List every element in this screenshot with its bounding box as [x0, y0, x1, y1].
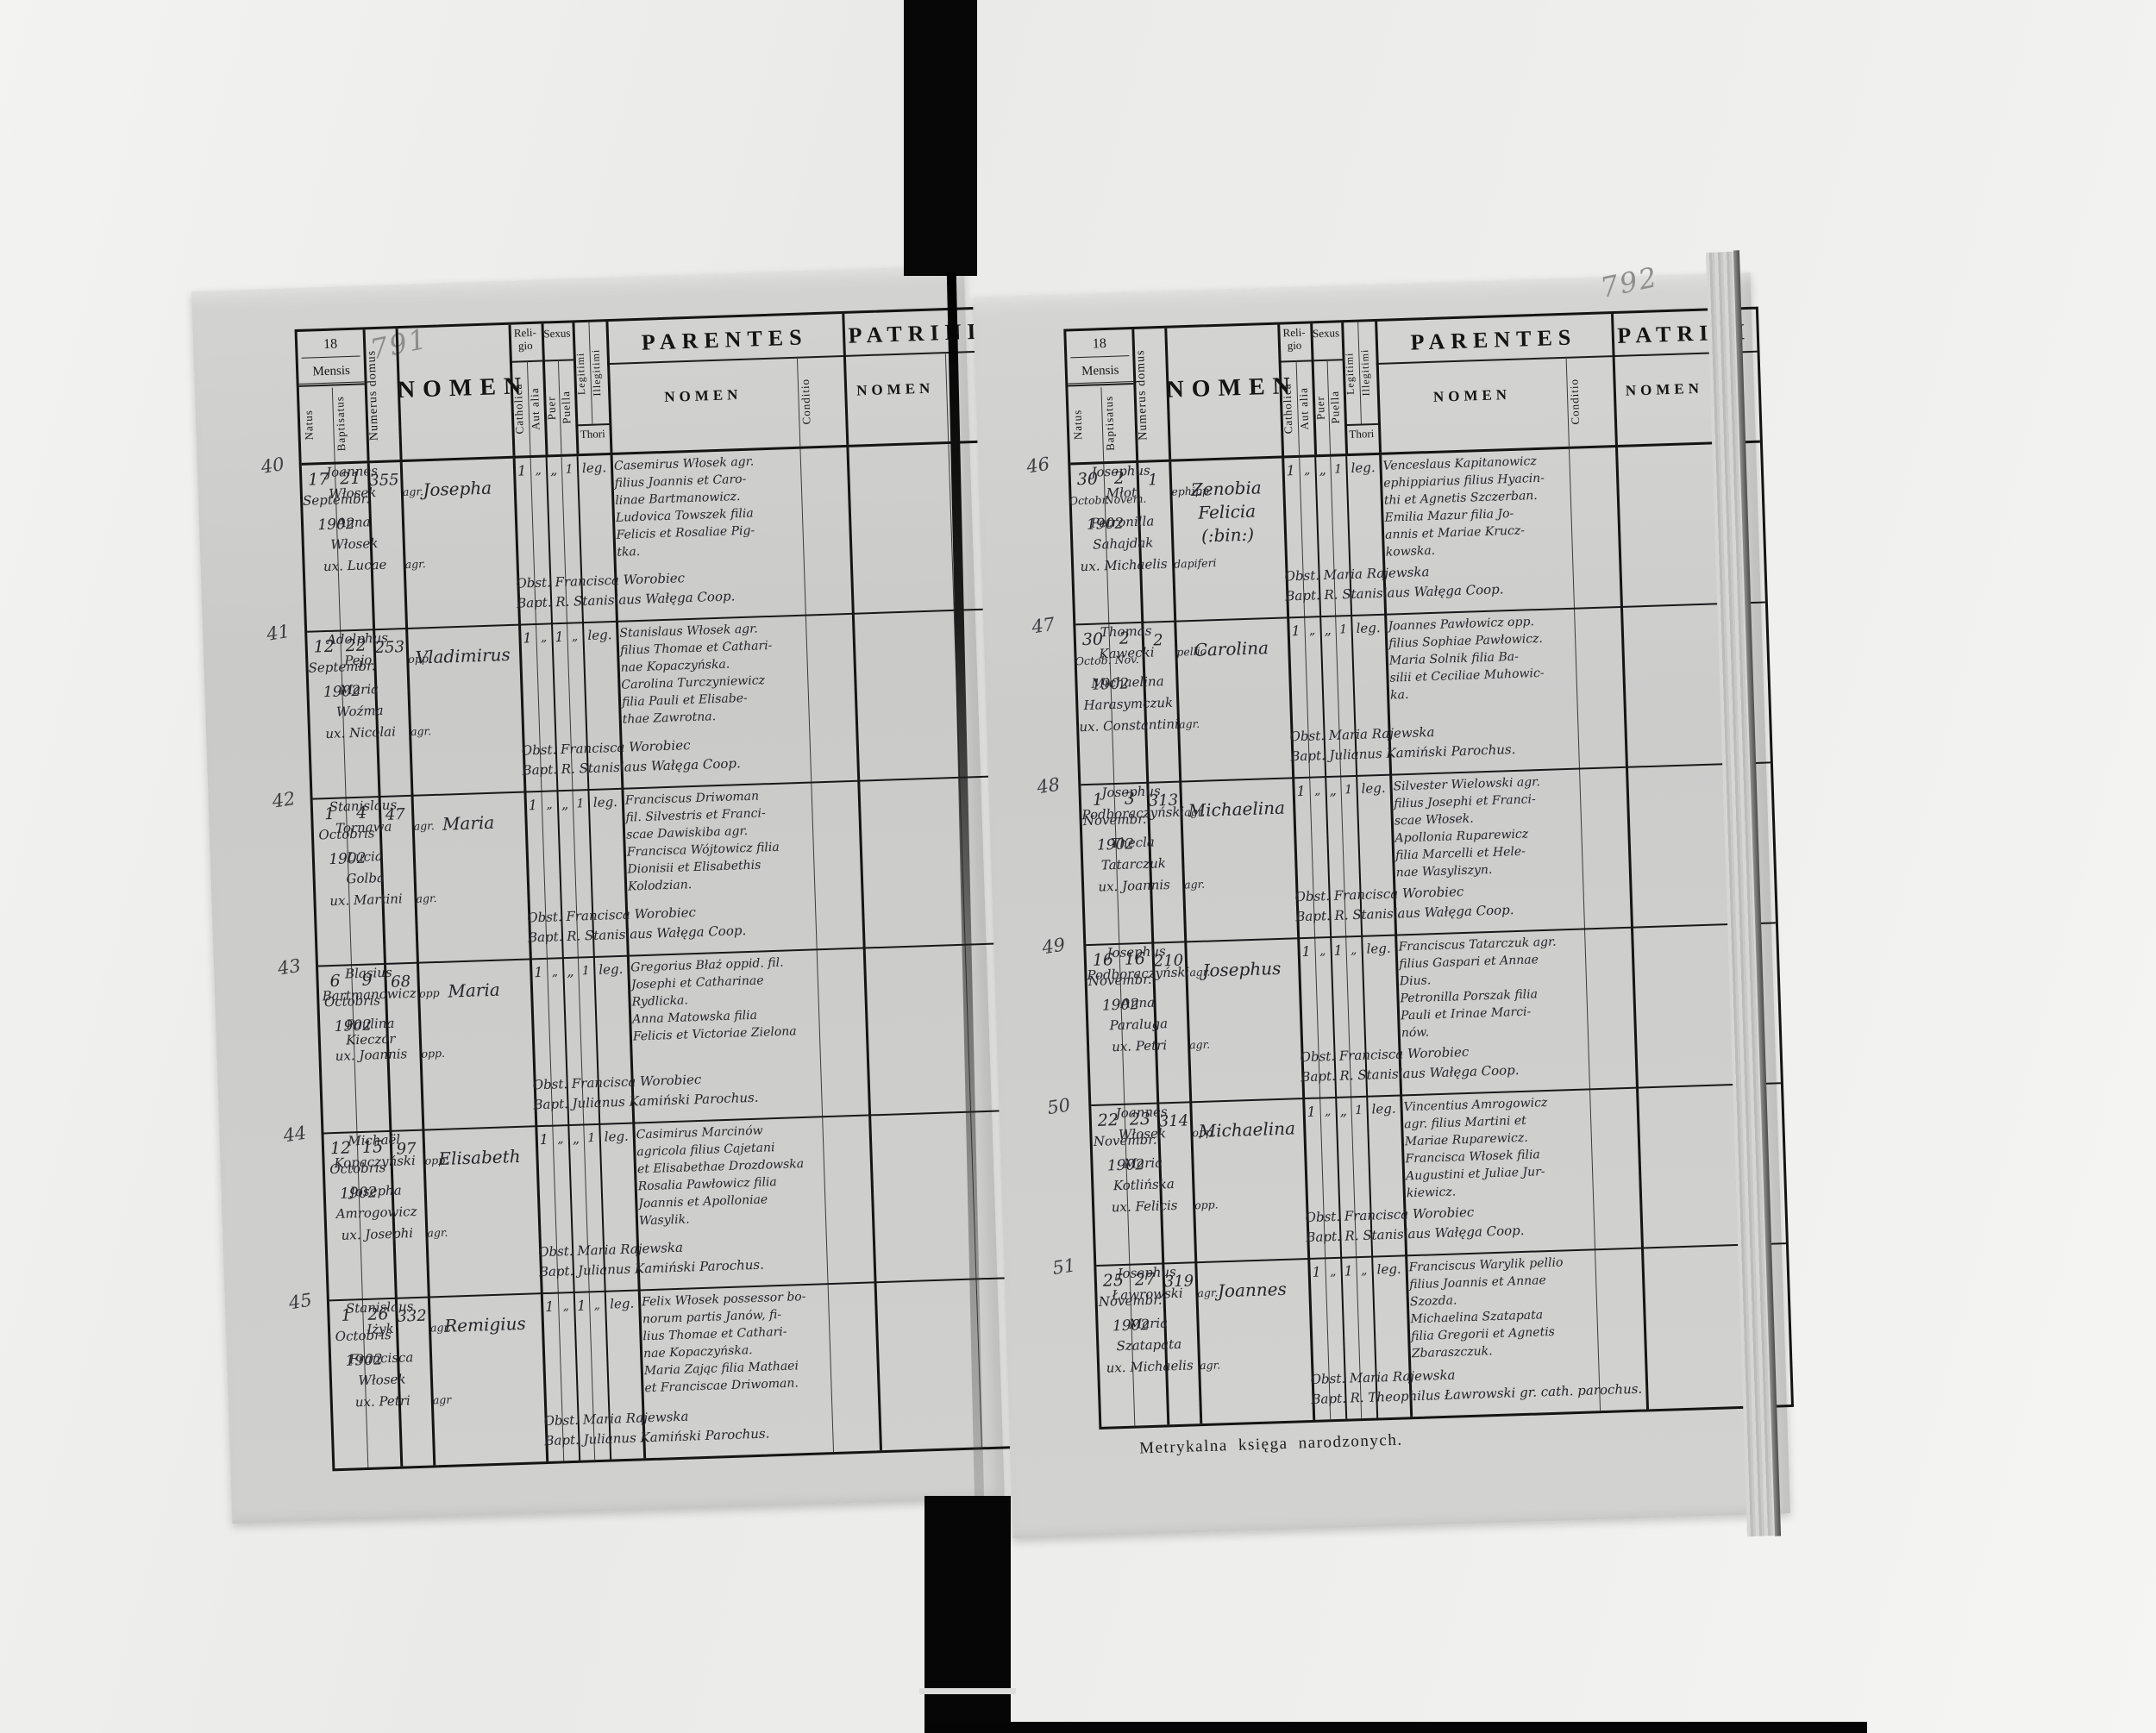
child-name: Maria: [417, 977, 531, 1004]
baptizer-line: Bapt. Julianus Kamiński Parochus.: [544, 1426, 770, 1449]
year: 1902: [304, 515, 370, 535]
natus-day: 30: [1071, 469, 1105, 489]
baptizer-line: Bapt. R. Stanislaus Wałęga Coop.: [517, 588, 736, 610]
mark-puella: 1: [561, 462, 578, 477]
patrini-conditio: [1197, 1274, 1238, 1276]
patrini-name: ux. Nicolai: [310, 723, 411, 742]
header-numerus-domus: Numerus domus: [1133, 332, 1167, 457]
child-name: Joannes: [1195, 1277, 1309, 1304]
baptizer-line: Bapt. Julianus Kamiński Parochus.: [1290, 741, 1516, 764]
patrini-conditio: agr.: [427, 1225, 468, 1240]
year: 1902: [1087, 996, 1154, 1015]
month: Octobris: [314, 825, 380, 843]
month: Octobris: [325, 1160, 392, 1178]
header-numerus-domus: Numerus domus: [365, 332, 398, 457]
mark-catholica: 1: [1302, 1103, 1320, 1120]
baptizer-line: Bapt. R. Stanislaus Wałęga Coop.: [1295, 902, 1514, 924]
entry-row: 30 2 Octobr. Novem. 1902 1 ZenobiaFelici…: [1070, 443, 1765, 626]
patrini-name: ux. Petri: [1089, 1036, 1190, 1055]
margin-entry-number: 50: [1046, 1094, 1072, 1118]
header-natus: Natus: [301, 388, 333, 461]
mark-puella: 1: [573, 797, 589, 811]
month-natus: Octobr.: [1069, 493, 1106, 507]
baptisatus-day: 23: [1123, 1110, 1158, 1129]
month: Novembr.: [1087, 972, 1153, 989]
patrini-conditio: [418, 974, 460, 976]
header-religio: Reli-gio: [509, 326, 542, 353]
year-prefix: 18: [301, 332, 360, 359]
mark-puella: 1: [578, 964, 594, 979]
patrini-conditio: agr.: [411, 723, 452, 738]
mark-catholica: 1: [1297, 943, 1315, 960]
parentes-text: Franciscus Warylik pelliofilius Joannis …: [1408, 1253, 1598, 1362]
child-name-line: Elisabeth: [423, 1144, 536, 1171]
mark-thori: leg.: [1346, 460, 1380, 476]
natus-day: 30: [1076, 629, 1110, 649]
patrini-conditio: [1192, 1114, 1233, 1116]
patrini-conditio: [408, 640, 449, 641]
mark-catholica: 1: [530, 964, 548, 981]
year: 1902: [1072, 515, 1138, 534]
baptisatus-day: 21: [333, 468, 368, 488]
month: Septembr.: [303, 491, 369, 509]
mark-puella: „: [1345, 943, 1362, 958]
mark-puella: 1: [1330, 462, 1346, 477]
baptizer-line: Bapt. Julianus Kamiński Parochus.: [533, 1090, 759, 1113]
mark-puer: „: [568, 1129, 585, 1147]
patrini-conditio: opp.: [1194, 1198, 1236, 1212]
mark-puer: „: [562, 963, 579, 980]
patrini-name: ux. Lucae: [304, 556, 405, 575]
mark-puella: 1: [1340, 783, 1357, 798]
patrini-name: Amrogowicz: [326, 1204, 427, 1223]
patrini-line: ux. Nicolaiagr.: [310, 722, 453, 748]
entry-row: 12 22 Septembr. 1902 253 Vladimirus 1 „ …: [307, 610, 1002, 799]
midwife-line: Obst. Maria Rajewska: [538, 1240, 683, 1261]
header-parentes-nomen: NOMEN: [608, 385, 799, 408]
parentes-text: Felix Włosek possessor bo-norum partis J…: [642, 1287, 831, 1397]
entry-row: 17 21 Septembr. 1902 355 Josepha 1 „ „ 1…: [302, 442, 997, 632]
pencil-page-number: 792: [1598, 260, 1661, 304]
month: Octobris: [330, 1327, 397, 1345]
mark-puer: „: [557, 796, 573, 813]
patrini-conditio: [402, 472, 443, 474]
mark-puer: „: [1314, 461, 1331, 479]
baptisatus-day: 2: [1107, 629, 1143, 648]
entry-row: 30 2 Octob. Nov. 1902 2 Carolina 1 „ „ 1…: [1075, 604, 1771, 786]
patrini-conditio: [420, 1025, 461, 1027]
mark-catholica: 1: [513, 462, 531, 479]
patrini-conditio: [413, 807, 454, 809]
register-table: 18 Mensis Natus Baptisatus Numerus domus…: [295, 306, 1027, 1471]
margin-entry-number: 48: [1036, 774, 1062, 798]
house-number: 97: [390, 1140, 423, 1159]
patrini-line: ux. Martiniagr.: [316, 889, 458, 915]
patrini-line: ux. Michaelisagr.: [1100, 1356, 1242, 1382]
patrini-conditio: [1199, 1325, 1240, 1327]
patrini-conditio: [1176, 633, 1218, 635]
mark-aut-alia: „: [553, 1132, 569, 1147]
child-name-line: Carolina: [1175, 635, 1288, 662]
register-page: 792 18 Mensis Natus Baptisatus Numerus d…: [973, 272, 1790, 1538]
film-edge-bar: [927, 1722, 1867, 1733]
mark-aut-alia: „: [558, 1299, 574, 1314]
patrini-name: ux. Martini: [316, 891, 417, 910]
mark-catholica: 1: [536, 1131, 554, 1148]
entry-row: 1 26 Octobris 1902 332 Remigius 1 „ 1 „ …: [329, 1279, 1025, 1468]
table-body: 17 21 Septembr. 1902 355 Josepha 1 „ „ 1…: [302, 442, 1025, 1468]
entry-row: 1 3 Novembr. 1902 313 Michaelina 1 „ „ 1…: [1081, 763, 1776, 946]
mark-puella: 1: [1335, 623, 1351, 637]
baptisatus-day: 2: [1102, 468, 1138, 488]
baptizer-line: Bapt. R. Stanislaus Wałęga Coop.: [1306, 1223, 1525, 1245]
patrini-line: ux. Felicisopp.: [1094, 1196, 1237, 1222]
header-parentes-conditio: Conditio: [1567, 359, 1614, 443]
table-header: 18 Mensis Natus Baptisatus Numerus domus…: [298, 309, 992, 465]
mark-catholica: 1: [518, 629, 536, 647]
patrini-conditio: dapiferi: [1174, 556, 1215, 571]
patrini-conditio: [1178, 684, 1219, 685]
mark-aut-alia: „: [1325, 1265, 1341, 1279]
natus-day: 6: [318, 971, 352, 991]
midwife-line: Obst. Francisca Worobiec: [1300, 1044, 1469, 1065]
entry-row: 22 23 Novembr. 1902 314 Michaelina 1 „ „…: [1091, 1084, 1786, 1267]
patrini-conditio: agr.: [1179, 716, 1220, 731]
header-natus: Natus: [1069, 387, 1101, 460]
patrini-conditio: [404, 523, 445, 525]
entry-row: 25 27 Novembr. 1902 319 Joannes 1 „ 1 „ …: [1096, 1244, 1791, 1427]
patrini-name: Golba: [315, 869, 416, 888]
month: Novembr.: [1081, 811, 1148, 829]
mark-puer: „: [1319, 622, 1336, 639]
child-name: ZenobiaFelicia(:bin:): [1169, 476, 1285, 549]
mark-puella: 1: [584, 1131, 600, 1146]
mark-puer: „: [1325, 782, 1341, 799]
natus-day: 22: [1092, 1110, 1125, 1130]
house-number: 313: [1147, 791, 1181, 810]
mark-thori: leg.: [1351, 620, 1385, 636]
entry-row: 1 4 Octobris 1902 47 Maria 1 „ „ 1 leg. …: [313, 777, 1008, 967]
mark-thori: leg.: [599, 1129, 633, 1145]
natus-day: 12: [324, 1138, 358, 1158]
table-body: 30 2 Octobr. Novem. 1902 1 ZenobiaFelici…: [1070, 443, 1791, 1427]
midwife-line: Obst. Maria Rajewska: [1289, 724, 1434, 744]
year: 1902: [1098, 1316, 1164, 1335]
header-religio: Reli-gio: [1277, 325, 1311, 352]
parentes-text: Vincentius Amrogowiczagr. filius Martini…: [1403, 1092, 1593, 1202]
parentes-text: Casimirus Marcinówagricola filius Cajeta…: [636, 1120, 825, 1229]
table-header: 18 Mensis Natus Baptisatus Numerus domus…: [1066, 310, 1760, 466]
patrini-name: ux. Felicis: [1094, 1197, 1195, 1216]
patrini-conditio: [1187, 954, 1228, 955]
house-number: 319: [1163, 1272, 1196, 1291]
patrini-conditio: agr.: [404, 556, 446, 571]
patrini-conditio: [1171, 472, 1213, 474]
patrini-line: ux. Constantiniagr.: [1079, 715, 1221, 741]
header-parentes: PARENTES: [1375, 319, 1612, 361]
parentes-text: Joannes Pawłowicz opp.filius Sophiae Paw…: [1388, 612, 1576, 704]
patrini-name: Tatarczuk: [1083, 854, 1184, 873]
mark-catholica: 1: [1292, 783, 1310, 800]
baptizer-line: Bapt. R. Stanislaus Wałęga Coop.: [1300, 1062, 1520, 1085]
midwife-line: Obst. Francisca Worobiec: [1305, 1204, 1474, 1225]
patrini-conditio: [410, 691, 451, 692]
house-number: 47: [379, 805, 412, 824]
header-mensis: Mensis: [1067, 359, 1133, 384]
margin-entry-number: 44: [282, 1123, 308, 1147]
year: 1902: [1077, 675, 1144, 694]
midwife-line: Obst. Francisca Worobiec: [527, 904, 696, 925]
midwife-line: Obst. Francisca Worobiec: [532, 1072, 701, 1092]
midwife-line: Obst. Maria Rajewska: [1310, 1367, 1455, 1387]
patrini-name: Harasymczuk: [1078, 695, 1179, 714]
patrini-name: Włosek: [304, 535, 405, 554]
month: Novembr.: [1092, 1132, 1158, 1149]
mark-puella: „: [589, 1298, 605, 1313]
header-baptisatus: Baptisatus: [333, 387, 365, 460]
mark-catholica: 1: [1287, 623, 1305, 640]
patrini-conditio: [1188, 1004, 1230, 1006]
header-patrini-nomen: NOMEN: [1614, 379, 1716, 400]
month: Novembr.: [1097, 1292, 1163, 1309]
header-patrini-nomen: NOMEN: [844, 379, 947, 400]
margin-entry-number: 43: [276, 955, 302, 979]
mark-thori: leg.: [1357, 780, 1390, 797]
child-name-line: Felicia: [1170, 499, 1284, 526]
child-name-line: Vladimirus: [406, 643, 520, 670]
child-name-line: Maria: [417, 977, 531, 1004]
patrini-name: Sahajdak: [1073, 535, 1174, 554]
house-number: 314: [1157, 1111, 1191, 1130]
child-name-line: Michaelina: [1190, 1117, 1304, 1143]
baptisatus-day: 26: [360, 1304, 396, 1324]
parentes-text: Franciscus Driwomanfil. Silvestris et Fr…: [625, 785, 815, 895]
child-name-line: (:bin:): [1171, 522, 1285, 548]
child-name: Remigius: [429, 1311, 542, 1338]
mark-thori: leg.: [594, 961, 628, 978]
patrini-line: ux. Petriagr: [333, 1391, 475, 1417]
mark-thori: leg.: [589, 794, 623, 810]
month-baptisatus: Novem.: [1104, 492, 1138, 506]
house-number: 210: [1152, 951, 1186, 970]
patrini-name: ux. Joannis: [321, 1046, 422, 1065]
year: 1902: [331, 1351, 398, 1371]
patrini-name: ux. Constantini: [1079, 716, 1180, 735]
baptisatus-day: 16: [1118, 949, 1153, 969]
mark-thori: leg.: [605, 1295, 639, 1311]
natus-day: 25: [1097, 1271, 1131, 1291]
baptizer-line: Bapt. R. Stanislaus Wałęga Coop.: [1285, 581, 1504, 604]
margin-entry-number: 51: [1051, 1254, 1077, 1279]
header-mensis: Mensis: [298, 359, 365, 385]
year: 1902: [320, 1017, 386, 1036]
mark-aut-alia: „: [1319, 1104, 1336, 1119]
midwife-line: Obst. Maria Rajewska: [1284, 564, 1429, 584]
child-name-line: Joannes: [1195, 1277, 1309, 1304]
month: Septembr.: [308, 658, 374, 676]
natus-day: 1: [329, 1305, 363, 1325]
mark-catholica: 1: [1307, 1263, 1326, 1280]
year-prefix: 18: [1069, 331, 1129, 358]
month: Octobris: [319, 992, 385, 1010]
mark-thori: leg.: [578, 460, 611, 476]
patrini-conditio: agr.: [416, 891, 457, 905]
parentes-text: Casemirus Włosek agr.filius Joannis et C…: [614, 452, 804, 561]
mark-puella: „: [1356, 1264, 1372, 1279]
mark-thori: leg.: [1362, 941, 1395, 957]
patrini-name: ux. Joannis: [1084, 876, 1185, 895]
patrini-conditio: agr.: [1200, 1358, 1241, 1373]
natus-day: 16: [1087, 950, 1120, 970]
house-number: 253: [373, 638, 406, 657]
baptisatus-day: 9: [349, 970, 385, 990]
patrini-conditio: [429, 1309, 471, 1311]
year: 1902: [1082, 835, 1149, 854]
child-name: Michaelina: [1180, 796, 1294, 823]
natus-day: 17: [302, 470, 335, 490]
midwife-line: Obst. Francisca Worobiec: [522, 737, 691, 758]
patrini-conditio: opp.: [421, 1046, 462, 1060]
film-strip-top: [904, 0, 977, 276]
child-name-line: Josepha: [400, 476, 514, 503]
mark-puer: „: [1335, 1102, 1351, 1119]
patrini-conditio: [426, 1192, 467, 1194]
patrini-name: Szatapata: [1099, 1336, 1200, 1354]
house-number: 332: [395, 1307, 429, 1326]
header-patrini: PATRINI: [842, 314, 987, 353]
header-thori: Thori: [575, 427, 610, 441]
patrini-line: ux. Michaelisdapiferi: [1074, 554, 1216, 580]
mark-puer: 1: [1340, 1262, 1357, 1279]
house-number: 1: [1137, 471, 1170, 490]
baptisatus-day: 3: [1112, 789, 1148, 809]
patrini-conditio: [1188, 1026, 1230, 1028]
child-name: Josepha: [400, 476, 514, 503]
patrini-conditio: [1178, 705, 1219, 707]
patrini-conditio: [424, 1142, 466, 1143]
parentes-text: Franciscus Tatarczuk agr.filius Gaspari …: [1398, 932, 1588, 1042]
midwife-line: Obst. Francisca Worobiec: [516, 570, 685, 591]
year: 1902: [309, 682, 375, 702]
mark-aut-alia: „: [547, 965, 563, 979]
midwife-line: Obst. Francisca Worobiec: [1294, 884, 1463, 904]
header-thori: Thori: [1344, 427, 1378, 441]
baptisatus-day: 27: [1128, 1270, 1163, 1290]
margin-entry-number: 41: [265, 621, 291, 645]
margin-entry-number: 46: [1025, 454, 1051, 478]
patrini-conditio: [415, 858, 456, 860]
mark-aut-alia: „: [530, 463, 547, 478]
patrini-conditio: [1194, 1186, 1235, 1188]
margin-entry-number: 49: [1041, 934, 1067, 958]
patrini-line: ux. Joannisopp.: [321, 1044, 463, 1070]
baptisatus-day: 4: [344, 803, 379, 823]
mark-aut-alia: „: [1304, 623, 1320, 638]
patrini-conditio: [432, 1381, 473, 1383]
parentes-text: Stanislaus Włosek agr.filius Thomae et C…: [619, 619, 809, 729]
patrini-conditio: agr: [433, 1392, 474, 1407]
patrini-conditio: [431, 1360, 473, 1361]
year: 1902: [1093, 1156, 1159, 1175]
mark-aut-alia: „: [1309, 784, 1326, 798]
child-name-line: Maria: [411, 810, 525, 837]
child-name-line: Zenobia: [1169, 476, 1283, 503]
entry-row: 6 9 Octobris 1902 68 Maria 1 „ „ 1 leg. …: [318, 944, 1013, 1134]
child-name: Michaelina: [1190, 1117, 1304, 1143]
patrini-conditio: [1183, 844, 1225, 846]
baptizer-line: Bapt. R. Stanislaus Wałęga Coop.: [528, 923, 747, 945]
patrini-line: ux. Petriagr.: [1089, 1035, 1232, 1061]
mark-thori: leg.: [583, 627, 617, 643]
header-parentes-conditio: Conditio: [798, 359, 845, 443]
header-baptisatus: Baptisatus: [1101, 386, 1133, 460]
footer-caption: Metrykalna księga narodzonych.: [1139, 1431, 1403, 1459]
mark-thori: leg.: [1372, 1261, 1406, 1277]
mark-catholica: 1: [1282, 462, 1300, 479]
register-table: 18 Mensis Natus Baptisatus Numerus domus…: [1063, 307, 1794, 1430]
margin-entry-number: 47: [1031, 614, 1056, 638]
baptisatus-day: 15: [355, 1137, 391, 1157]
scanned-register-spread: 791 18 Mensis Natus Baptisatus Numerus d…: [0, 0, 2156, 1733]
patrini-conditio: [404, 545, 446, 547]
mark-catholica: 1: [524, 797, 542, 814]
child-name-line: Josephus: [1185, 956, 1299, 983]
year: 1902: [325, 1184, 392, 1204]
house-number: 68: [384, 973, 417, 992]
baptizer-line: Bapt. Julianus Kamiński Parochus.: [539, 1257, 765, 1280]
patrini-conditio: [427, 1214, 468, 1216]
header-nomen: NOMEN: [397, 373, 511, 404]
patrini-conditio: [410, 712, 451, 714]
patrini-name: ux. Michaelis: [1074, 556, 1175, 575]
patrini-name: ux. Josephi: [327, 1225, 428, 1244]
mark-aut-alia: „: [542, 798, 558, 812]
patrini-conditio: agr.: [1184, 877, 1225, 892]
patrini-conditio: [416, 879, 457, 881]
house-number: 2: [1142, 631, 1175, 650]
mark-puer: 1: [551, 629, 567, 646]
patrini-conditio: [1181, 793, 1223, 795]
patrini-name: Paraluga: [1088, 1015, 1189, 1034]
patrini-line: ux. Joannisagr.: [1084, 875, 1226, 901]
mark-aut-alia: „: [1314, 944, 1331, 959]
patrini-conditio: agr.: [1189, 1037, 1231, 1052]
parentes-text: Venceslaus Kapitanowiczephippiarius fili…: [1382, 452, 1572, 561]
child-name-line: Remigius: [429, 1311, 542, 1338]
patrini-conditio: [1199, 1347, 1240, 1348]
film-scratch-line: [919, 1688, 1016, 1694]
patrini-line: ux. Josephiagr.: [327, 1223, 469, 1249]
patrini-name: Kotlińska: [1094, 1175, 1194, 1194]
margin-entry-number: 40: [260, 454, 285, 478]
entry-row: 16 16 Novembr. 1902 210 Josephus 1 „ 1 „…: [1086, 923, 1781, 1106]
child-name: Vladimirus: [406, 643, 520, 670]
header-nomen: NOMEN: [1166, 373, 1280, 404]
mark-aut-alia: „: [1299, 463, 1315, 478]
mark-puella: „: [567, 629, 583, 644]
month-baptisatus: Nov.: [1109, 653, 1144, 666]
patrini-name: ux. Michaelis: [1100, 1357, 1200, 1376]
month-natus: Octob.: [1074, 654, 1112, 667]
child-name: Carolina: [1175, 635, 1288, 662]
patrini-name: Woźma: [310, 702, 411, 721]
child-name: Josephus: [1185, 956, 1299, 983]
child-name-line: Michaelina: [1180, 796, 1294, 823]
film-strip-bottom: [924, 1496, 1011, 1733]
natus-day: 1: [1081, 790, 1115, 810]
patrini-name: ux. Petri: [333, 1392, 434, 1411]
baptizer-line: Bapt. R. Stanislaus Wałęga Coop.: [522, 755, 741, 778]
